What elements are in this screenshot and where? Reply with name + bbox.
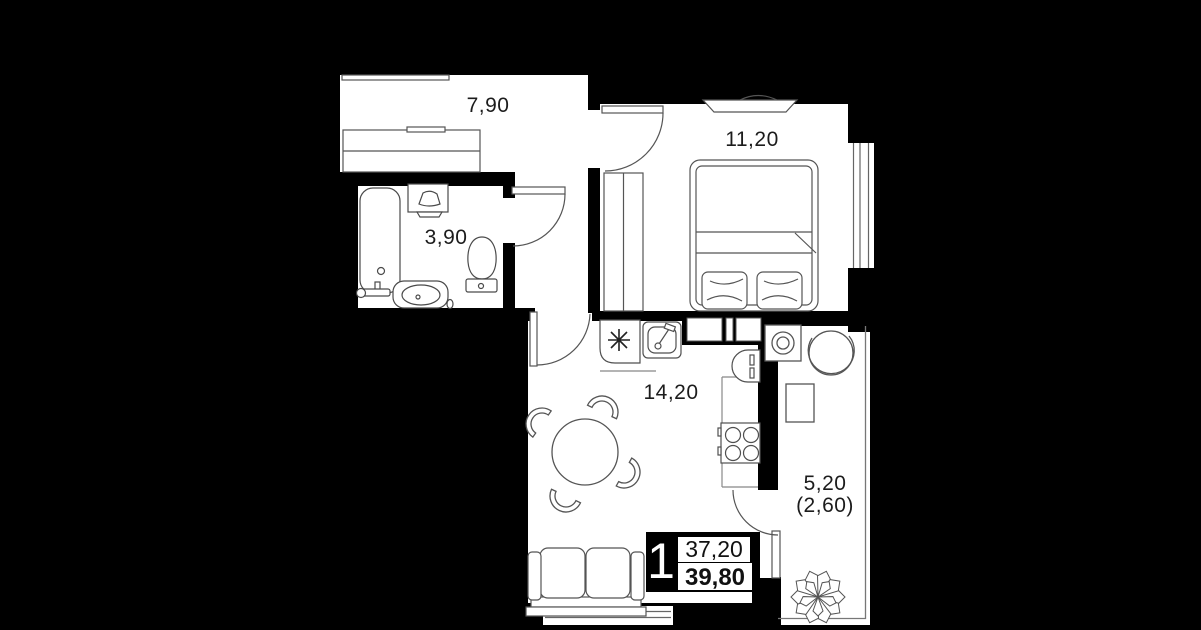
pillow-icon bbox=[757, 272, 802, 309]
bathtub-icon bbox=[357, 188, 401, 298]
oven-icon bbox=[732, 350, 760, 382]
living-doorway bbox=[535, 313, 592, 321]
kitchen-living-area-label: 14,20 bbox=[643, 381, 698, 404]
toilet-icon bbox=[466, 237, 497, 292]
wardrobe-icon bbox=[343, 127, 480, 172]
duct-shaft-icon bbox=[726, 318, 733, 341]
bathroom-doorway bbox=[503, 198, 515, 243]
kitchen-sink-icon bbox=[643, 322, 681, 358]
armchair-icon bbox=[808, 331, 854, 375]
window-bedroom-icon bbox=[850, 143, 874, 268]
bedroom-doorway bbox=[588, 110, 600, 168]
hallway-area-label: 7,90 bbox=[467, 94, 510, 117]
sofa-icon bbox=[526, 548, 646, 616]
badge-total-area: 39,80 bbox=[685, 564, 745, 591]
pillow-icon bbox=[702, 272, 747, 309]
duct-shaft-icon bbox=[687, 318, 722, 341]
badge-room-count: 1 bbox=[647, 533, 675, 589]
bed-icon bbox=[690, 160, 818, 311]
bathroom-area-label: 3,90 bbox=[425, 226, 468, 249]
entry-shelf-icon bbox=[342, 75, 449, 80]
floor-plan: 7,90 3,90 11,20 14,20 5,20 (2,60) 1 37,2… bbox=[0, 0, 1201, 630]
badge-living-area: 37,20 bbox=[685, 536, 743, 562]
balcony-doorway bbox=[758, 490, 778, 532]
balcony-table-icon bbox=[786, 384, 814, 422]
duct-shaft-icon bbox=[736, 318, 761, 341]
stove-icon bbox=[718, 423, 760, 463]
washing-machine-icon bbox=[765, 325, 801, 361]
wardrobe-bedroom-icon bbox=[604, 173, 643, 311]
floor-plan-canvas: 7,90 3,90 11,20 14,20 5,20 (2,60) 1 37,2… bbox=[0, 0, 1201, 630]
bedroom-area-label: 11,20 bbox=[725, 128, 779, 151]
dining-table-icon bbox=[552, 419, 618, 485]
bathroom-sink-icon bbox=[393, 281, 453, 309]
balcony-area-label: 5,20 bbox=[804, 472, 847, 495]
balcony-coeff-area-label: (2,60) bbox=[796, 494, 854, 517]
bath-cabinet-icon bbox=[408, 184, 448, 217]
info-badge: 1 37,20 39,80 bbox=[646, 532, 753, 592]
fridge-icon bbox=[600, 320, 640, 363]
